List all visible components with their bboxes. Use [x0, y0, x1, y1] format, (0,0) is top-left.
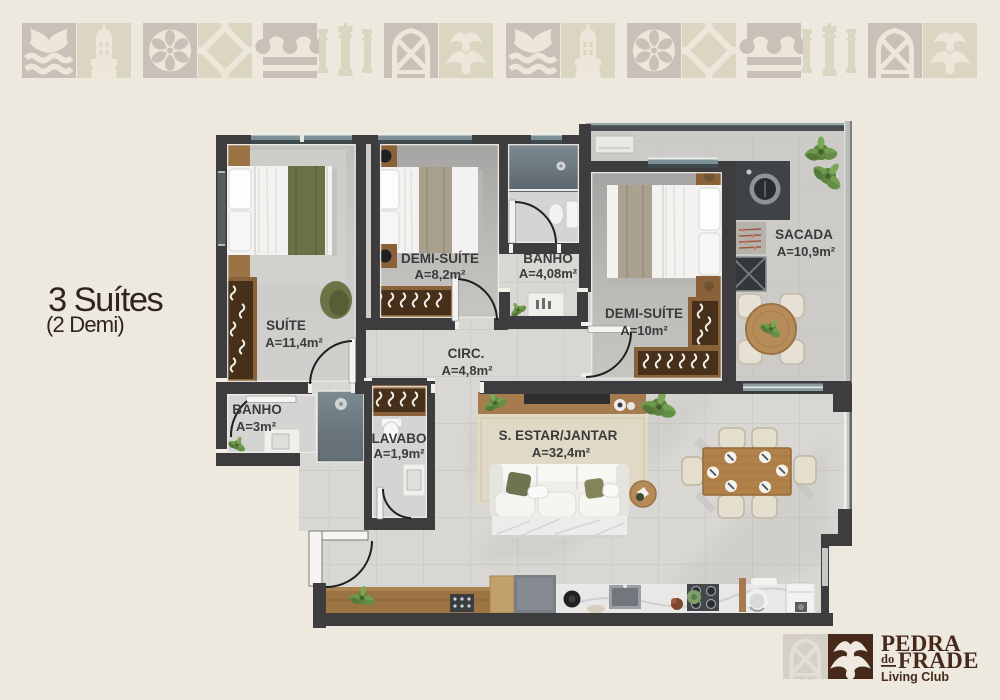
svg-text:SUÍTE: SUÍTE	[266, 318, 306, 333]
svg-text:BANHO: BANHO	[232, 402, 282, 417]
svg-text:LAVABO: LAVABO	[372, 431, 427, 446]
svg-text:BANHO: BANHO	[523, 251, 573, 266]
svg-text:A=3m²: A=3m²	[236, 419, 277, 434]
svg-text:A=4,8m²: A=4,8m²	[442, 363, 494, 378]
svg-text:SACADA: SACADA	[775, 227, 833, 242]
svg-text:A=10,9m²: A=10,9m²	[777, 244, 836, 259]
svg-text:DEMI-SUÍTE: DEMI-SUÍTE	[605, 306, 683, 321]
svg-text:A=11,4m²: A=11,4m²	[265, 335, 323, 350]
svg-text:CIRC.: CIRC.	[448, 346, 485, 361]
svg-text:Living Club: Living Club	[881, 670, 949, 684]
svg-text:(2 Demi): (2 Demi)	[46, 312, 124, 337]
svg-text:S. ESTAR/JANTAR: S. ESTAR/JANTAR	[499, 428, 618, 443]
svg-text:A=1,9m²: A=1,9m²	[374, 446, 426, 461]
svg-text:A=8,2m²: A=8,2m²	[415, 267, 467, 282]
svg-text:A=4,08m²: A=4,08m²	[519, 266, 578, 281]
svg-text:DEMI-SUÍTE: DEMI-SUÍTE	[401, 251, 479, 266]
svg-text:do: do	[881, 652, 894, 666]
svg-text:A=10m²: A=10m²	[620, 323, 668, 338]
svg-text:A=32,4m²: A=32,4m²	[532, 445, 591, 460]
